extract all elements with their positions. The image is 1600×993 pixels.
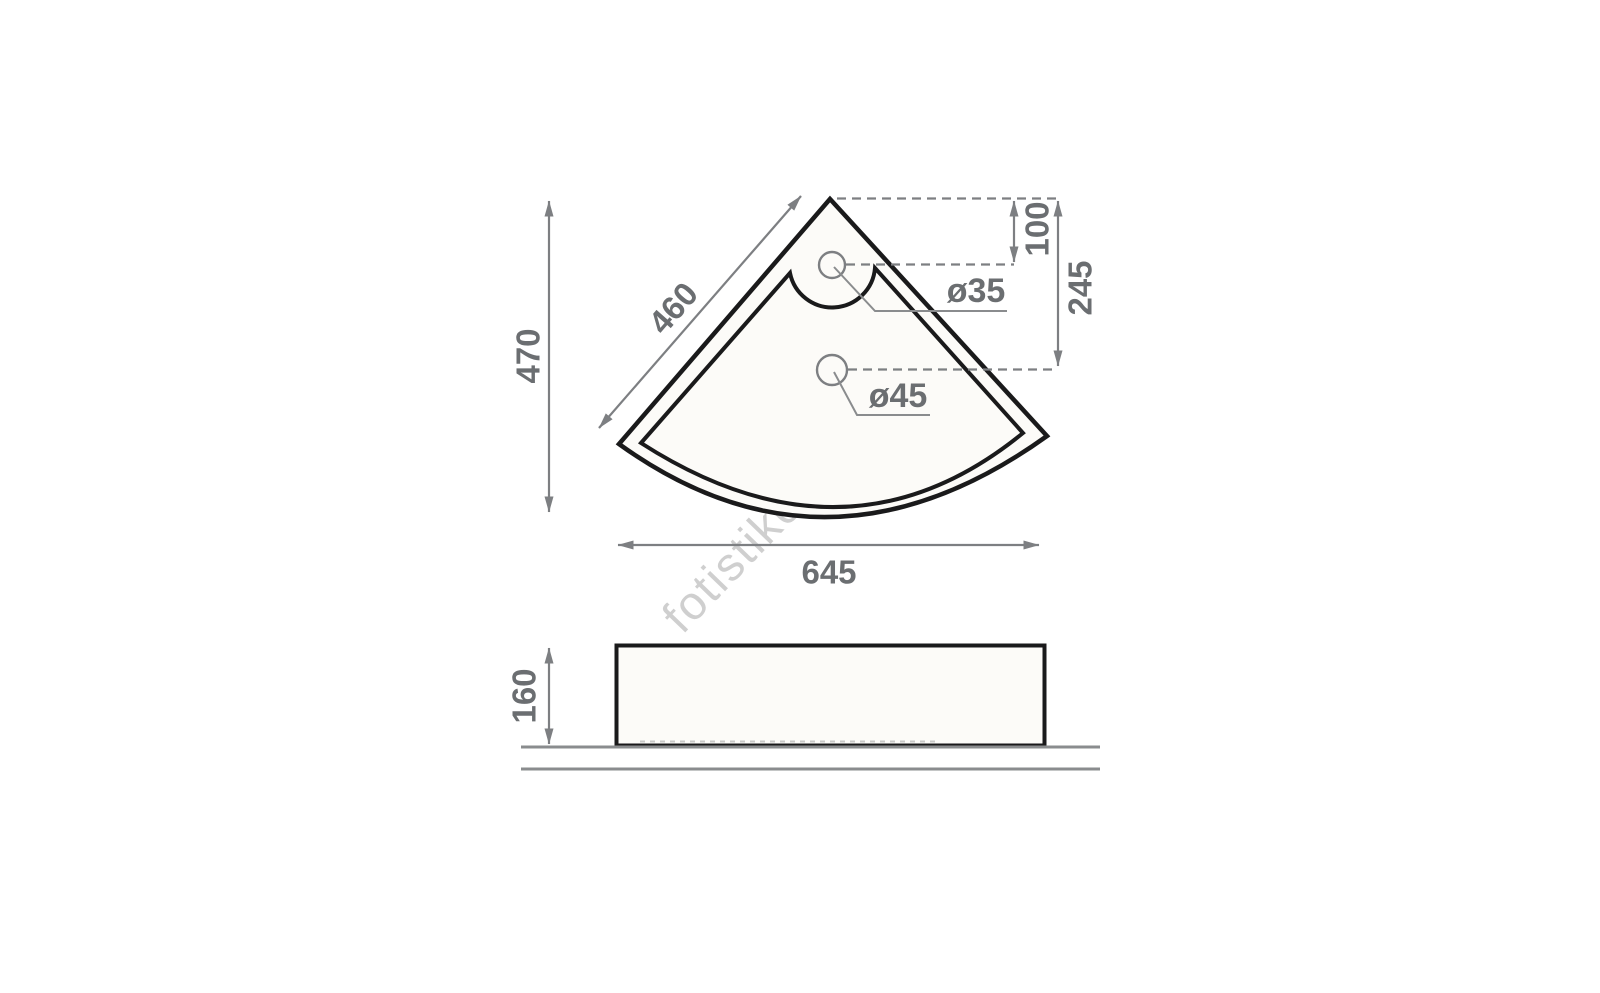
dimension-label-160: 160 xyxy=(506,668,543,723)
dimension-label-645: 645 xyxy=(801,554,856,591)
side-view: 160 xyxy=(506,646,1101,770)
basin-technical-drawing: fotistikosmos.gr 470 460 645 xyxy=(0,0,1600,993)
dimension-label-100: 100 xyxy=(1019,201,1056,256)
dimension-label-245: 245 xyxy=(1062,260,1099,315)
callout-label-drain-diameter: ø45 xyxy=(869,377,928,415)
drawing-canvas: fotistikosmos.gr 470 460 645 xyxy=(0,0,1600,993)
top-view: 470 460 645 100 245 ø35 ø45 xyxy=(510,196,1099,591)
drain-hole xyxy=(817,355,847,385)
dimension-label-460: 460 xyxy=(641,275,705,341)
callout-label-faucet-diameter: ø35 xyxy=(947,272,1006,310)
basin-side-profile xyxy=(617,646,1045,746)
dimension-label-470: 470 xyxy=(510,328,547,383)
